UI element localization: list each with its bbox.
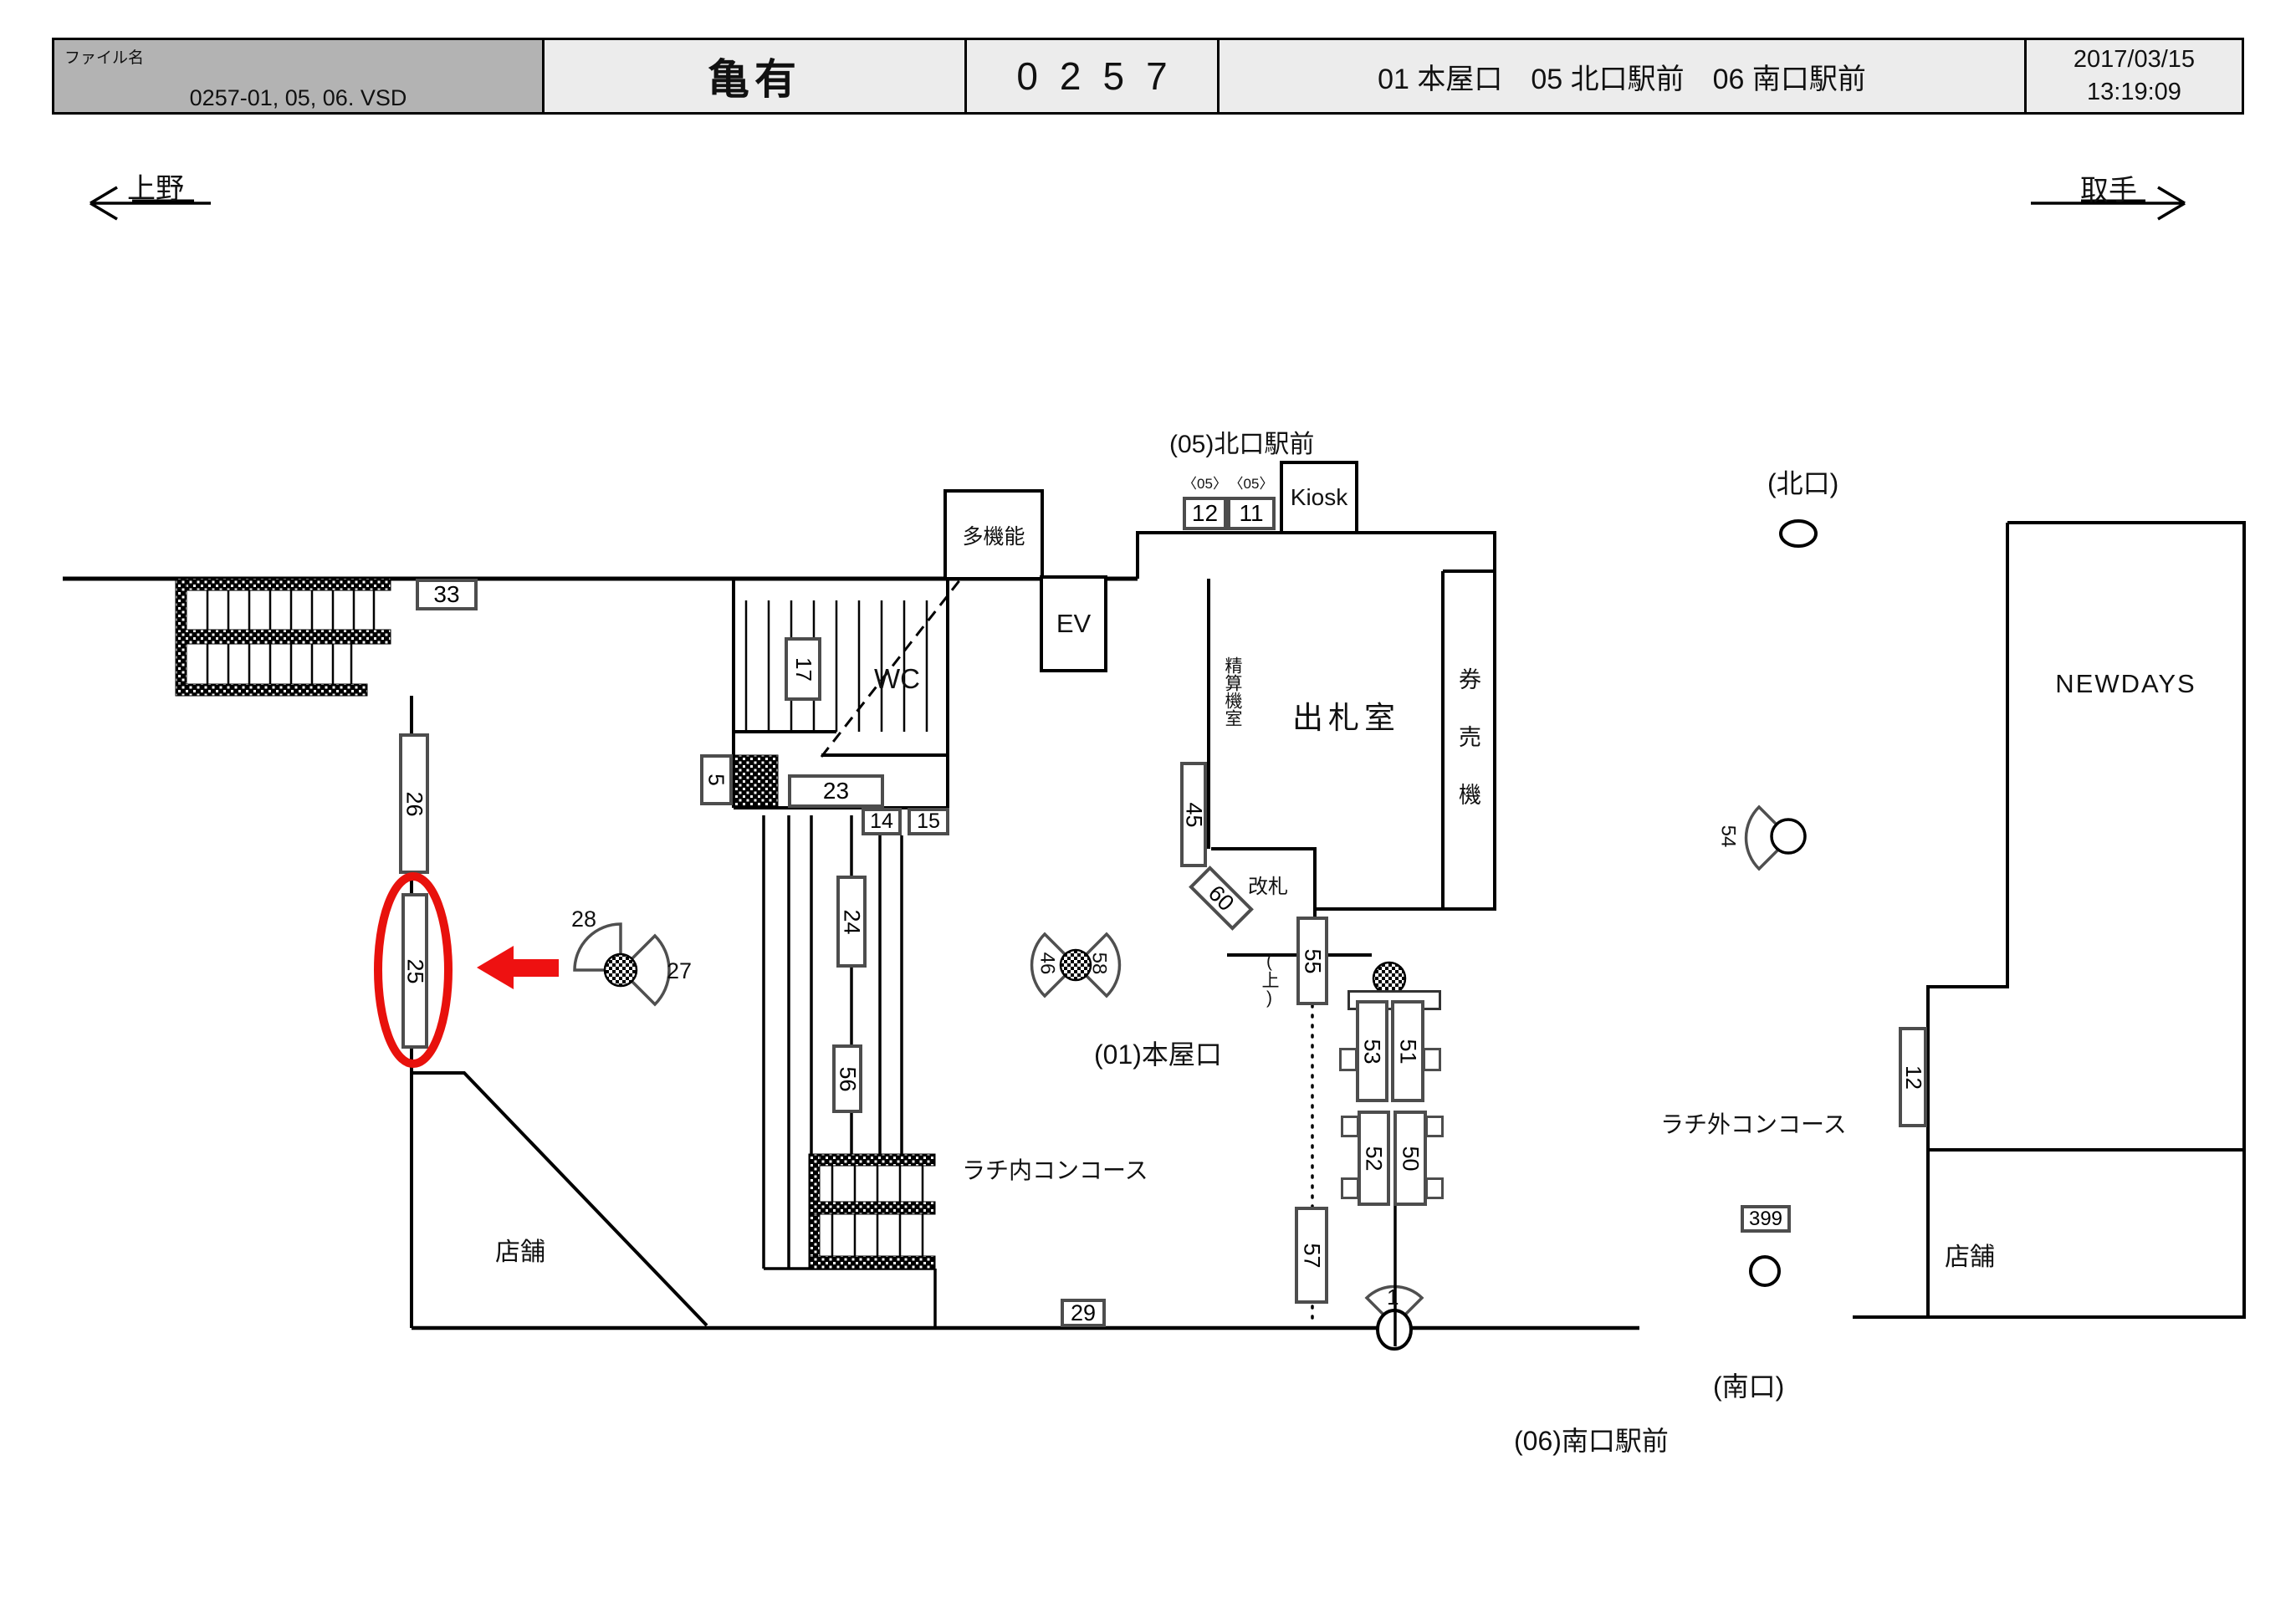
wc-label: WC xyxy=(874,663,920,695)
sign-tab xyxy=(1425,1116,1444,1137)
ad-sign-55: 55 xyxy=(1296,917,1328,1005)
badge-05-b: 〈05〉 xyxy=(1227,472,1276,493)
ad-sign-5: 5 xyxy=(700,754,733,805)
ad-sign-33: 33 xyxy=(416,579,478,610)
header-locations-cell: 01 本屋口 05 北口駅前 06 南口駅前 xyxy=(1217,38,2027,115)
ad-sign-45: 45 xyxy=(1180,762,1207,867)
ad-sign-12-north: 12 xyxy=(1183,497,1227,530)
shop-left-label: 店舗 xyxy=(495,1231,545,1268)
location-list: 01 本屋口 05 北口駅前 06 南口駅前 xyxy=(1378,56,1866,97)
ad-sign-17: 17 xyxy=(785,637,821,701)
elevator-label: EV xyxy=(1041,577,1106,671)
right-building xyxy=(1853,523,2244,1317)
station-code: 0257 xyxy=(995,54,1189,99)
newdays-label: NEWDAYS xyxy=(2007,669,2244,699)
floorplan-linework xyxy=(0,0,2296,1624)
fare-adjust-room-label: 精算機室 xyxy=(1220,656,1245,727)
multifunction-label: 多機能 xyxy=(945,491,1042,579)
ad-sign-52: 52 xyxy=(1358,1111,1390,1206)
pillar-open xyxy=(1781,521,1816,546)
fan-label-58: 58 xyxy=(1087,952,1110,975)
fan-label-46: 46 xyxy=(1035,952,1058,975)
area-label-main-entrance: (01)本屋口 xyxy=(1094,1034,1222,1072)
ad-sign-50: 50 xyxy=(1393,1111,1427,1206)
ad-sign-51: 51 xyxy=(1391,1000,1424,1102)
fan-label-27: 27 xyxy=(667,958,692,984)
up-label: (上) xyxy=(1256,952,1281,1008)
ad-sign-57: 57 xyxy=(1295,1207,1328,1304)
station-name: 亀有 xyxy=(708,46,801,106)
ticket-machines-label: 券売機 xyxy=(1452,667,1485,840)
fan-label-1: 1 xyxy=(1387,1284,1399,1310)
area-label-south-exit: (南口) xyxy=(1713,1366,1784,1404)
header-file-cell: ファイル名 0257-01, 05, 06. VSD xyxy=(52,38,545,115)
ad-sign-25: 25 xyxy=(401,893,428,1049)
badge-05-a: 〈05〉 xyxy=(1183,472,1227,493)
shop-right-label: 店舗 xyxy=(1945,1236,1995,1273)
ticket-office-building xyxy=(1138,533,1495,955)
ad-sign-29: 29 xyxy=(1061,1299,1106,1327)
header-datetime-cell: 2017/03/15 13:19:09 xyxy=(2024,38,2244,115)
ad-sign-399: 399 xyxy=(1741,1205,1791,1233)
sign-tab xyxy=(1341,1177,1359,1199)
print-date: 2017/03/15 xyxy=(2074,43,2195,76)
sign-tab xyxy=(1425,1177,1444,1199)
file-name-value: 0257-01, 05, 06. VSD xyxy=(54,85,542,111)
fan-label-28: 28 xyxy=(571,906,596,932)
header-code-cell: 0257 xyxy=(964,38,1220,115)
left-staircase xyxy=(176,579,391,696)
ad-sign-11: 11 xyxy=(1227,497,1276,530)
kiosk-label: Kiosk xyxy=(1281,462,1357,533)
area-label-north-exit: (北口) xyxy=(1767,462,1838,501)
lower-staircase xyxy=(809,1154,935,1269)
file-name-label: ファイル名 xyxy=(64,45,144,68)
ticket-office-label: 出札室 xyxy=(1292,692,1400,738)
area-label-outside-concourse: ラチ外コンコース xyxy=(1660,1106,1847,1140)
sign-tab xyxy=(1339,1048,1358,1071)
ad-sign-56: 56 xyxy=(832,1044,862,1113)
ad-sign-26: 26 xyxy=(399,733,429,874)
print-time: 13:19:09 xyxy=(2087,76,2181,109)
direction-left-label: 上野 xyxy=(127,166,184,207)
header-station-cell: 亀有 xyxy=(542,38,967,115)
ad-sign-53: 53 xyxy=(1356,1000,1388,1102)
station-floorplan-page: { "header": { "file_label": "ファイル名", "fi… xyxy=(0,0,2296,1624)
ad-sign-12-south: 12 xyxy=(1899,1027,1927,1127)
ad-sign-15: 15 xyxy=(908,808,949,835)
fan-label-54: 54 xyxy=(1716,825,1739,848)
area-label-south-gate-front: (06)南口駅前 xyxy=(1514,1420,1669,1458)
sign-tab xyxy=(1423,1048,1441,1071)
ad-sign-14: 14 xyxy=(862,808,902,835)
pillar-open xyxy=(1772,820,1805,853)
ad-sign-24: 24 xyxy=(836,876,867,968)
pillar-open xyxy=(1751,1257,1779,1285)
direction-right-label: 取手 xyxy=(2080,167,2137,208)
shop-wall xyxy=(412,1073,707,1325)
gate-label: 改札 xyxy=(1248,870,1288,899)
area-label-north-gate-front: (05)北口駅前 xyxy=(1169,423,1314,460)
ad-sign-23: 23 xyxy=(788,774,884,808)
pillar-hatched xyxy=(605,954,637,986)
area-label-inside-concourse: ラチ内コンコース xyxy=(962,1152,1148,1186)
sign-tab xyxy=(1341,1116,1359,1137)
